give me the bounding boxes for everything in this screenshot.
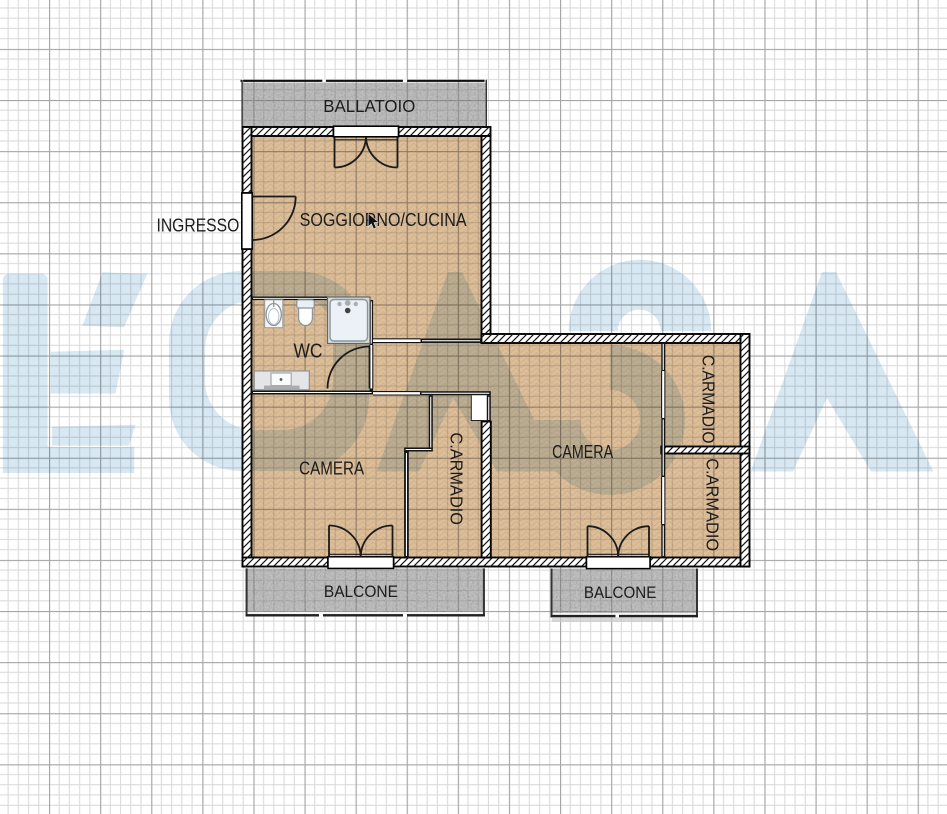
svg-text:CAMERA: CAMERA [552, 442, 613, 462]
svg-text:C.ARMADIO: C.ARMADIO [702, 458, 722, 551]
svg-text:BALCONE: BALCONE [584, 583, 657, 602]
svg-text:INGRESSO: INGRESSO [156, 216, 239, 236]
svg-text:C.ARMADIO: C.ARMADIO [698, 355, 718, 444]
svg-text:BALLATOIO: BALLATOIO [323, 96, 415, 116]
svg-text:BALCONE: BALCONE [324, 582, 398, 601]
svg-text:SOGGIORNO/CUCINA: SOGGIORNO/CUCINA [300, 210, 467, 230]
svg-text:C.ARMADIO: C.ARMADIO [446, 432, 466, 525]
svg-text:CAMERA: CAMERA [299, 459, 364, 479]
svg-text:WC: WC [294, 341, 323, 363]
